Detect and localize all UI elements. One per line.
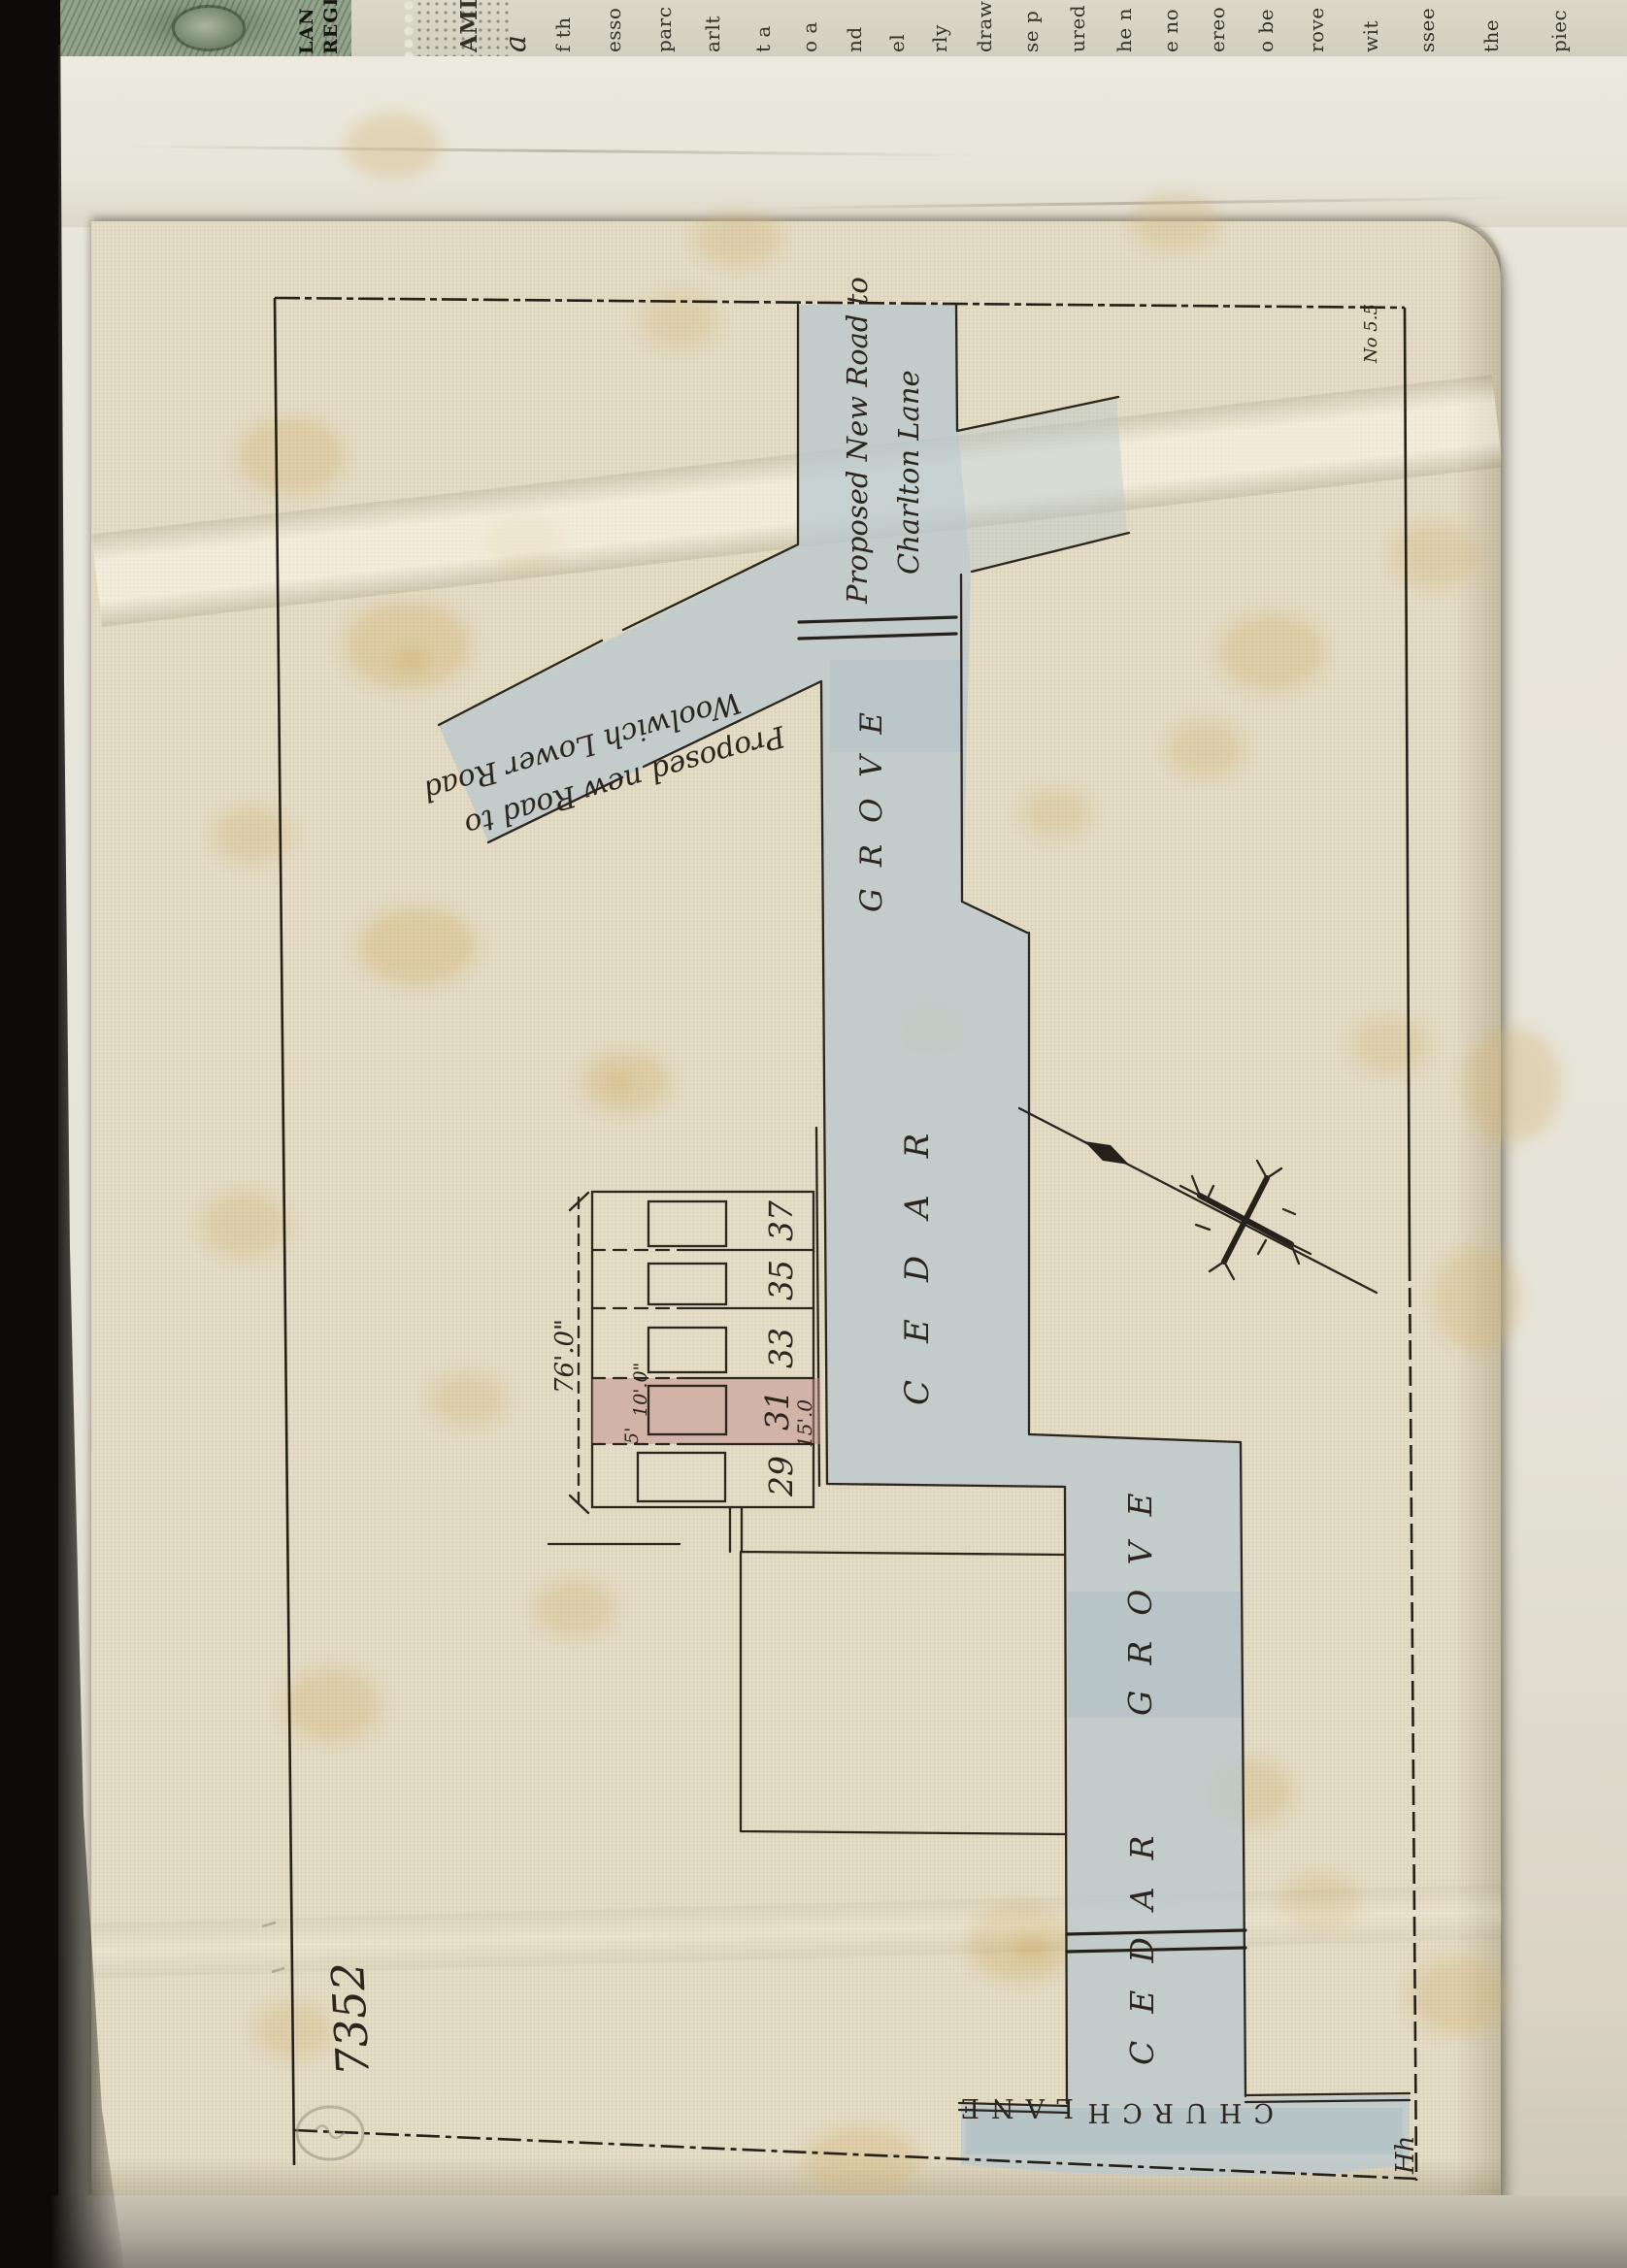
plot-number-31: 31 [758,1390,796,1430]
church-lane-label-church: CHURCH [1077,2097,1275,2127]
total-frontage-dimension: 76'.0" [550,1319,580,1394]
cedar-grove-upper-cedar: CEDAR [898,1097,937,1405]
charlton-road-label-line1: Proposed New Road to [841,277,874,605]
plot-number-33: 33 [762,1328,800,1368]
rear-offset-dimension: 5' [621,1428,643,1444]
church-lane-label-lane: LANE [948,2092,1074,2122]
plot-number-35: 35 [762,1260,800,1300]
corner-note: No 5.5 [1361,304,1381,364]
arrow-diamond [1084,1141,1129,1165]
plot-number-29: 29 [762,1456,800,1497]
plan-drawing: Proposed New Road to Charlton Lane Propo… [0,0,1627,2268]
charlton-road-label-line2: Charlton Lane [892,370,925,575]
book-page-roll-edge [0,2195,1627,2268]
scanned-book-opening: LAN REGIS AMI a f th esso parc arlt t a … [0,0,1627,2268]
cedar-grove-lower-cedar: CEDAR [1123,1809,1161,2065]
archive-number: 7352 [321,1961,380,2078]
surveyor-initials: Hh [1391,2136,1420,2175]
cedar-grove-lower-grove: GROVE [1121,1467,1159,1716]
houses-block [548,1192,820,1552]
rear-width-dimension: 10'.0" [630,1363,651,1417]
plot-number-37: 37 [762,1200,800,1241]
rear-plot-boundary [741,1552,1066,1834]
north-arrow [1019,1108,1377,1293]
plot-31-frontage-dimension: 15'.0 [793,1399,816,1448]
cedar-grove-upper-grove: GROVE [854,691,889,912]
